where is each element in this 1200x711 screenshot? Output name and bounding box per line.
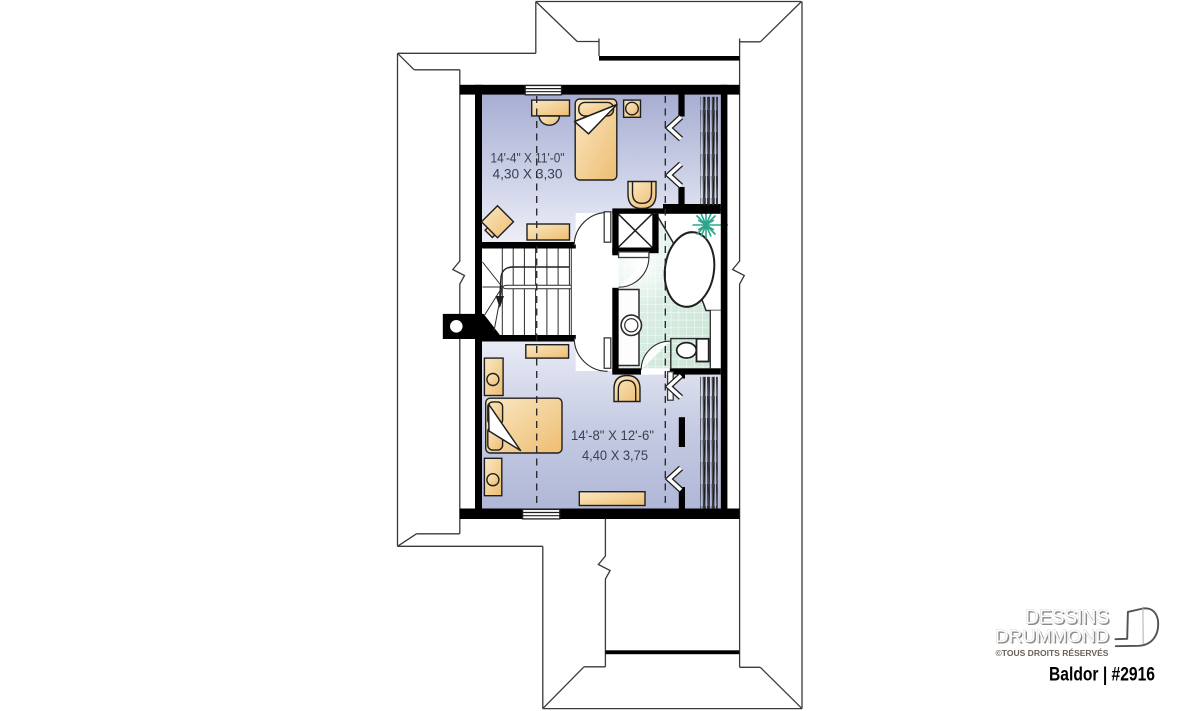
svg-text:14'-8" X 12'-6": 14'-8" X 12'-6" <box>571 428 654 444</box>
svg-text:Baldor | #2916: Baldor | #2916 <box>1049 664 1155 686</box>
svg-text:DRUMMOND: DRUMMOND <box>995 626 1109 646</box>
svg-text:4,30 X 3,30: 4,30 X 3,30 <box>493 167 563 183</box>
svg-text:©TOUS DROITS RÉSERVÉS: ©TOUS DROITS RÉSERVÉS <box>996 648 1109 658</box>
svg-text:4,40 X 3,75: 4,40 X 3,75 <box>582 448 648 464</box>
svg-text:14'-4" X 11'-0": 14'-4" X 11'-0" <box>491 151 565 167</box>
